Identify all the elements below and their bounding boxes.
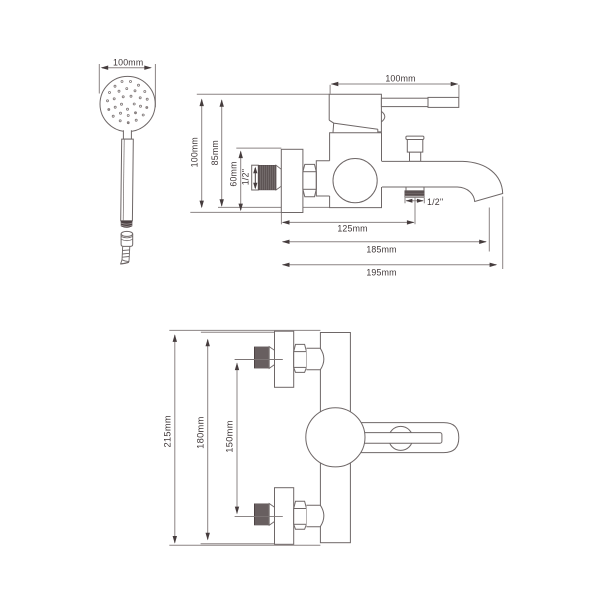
svg-text:195mm: 195mm	[366, 267, 396, 277]
svg-text:150mm: 150mm	[225, 420, 235, 453]
svg-text:1/2'': 1/2''	[240, 169, 250, 186]
svg-text:85mm: 85mm	[210, 140, 220, 165]
svg-text:185mm: 185mm	[366, 244, 396, 254]
svg-text:60mm: 60mm	[229, 161, 239, 186]
svg-text:125mm: 125mm	[337, 223, 367, 233]
svg-text:100mm: 100mm	[113, 57, 143, 67]
svg-text:1/2'': 1/2''	[427, 197, 444, 207]
svg-text:100mm: 100mm	[385, 74, 415, 84]
svg-text:100mm: 100mm	[190, 137, 200, 167]
svg-text:215mm: 215mm	[163, 415, 173, 448]
svg-text:180mm: 180mm	[195, 416, 205, 449]
